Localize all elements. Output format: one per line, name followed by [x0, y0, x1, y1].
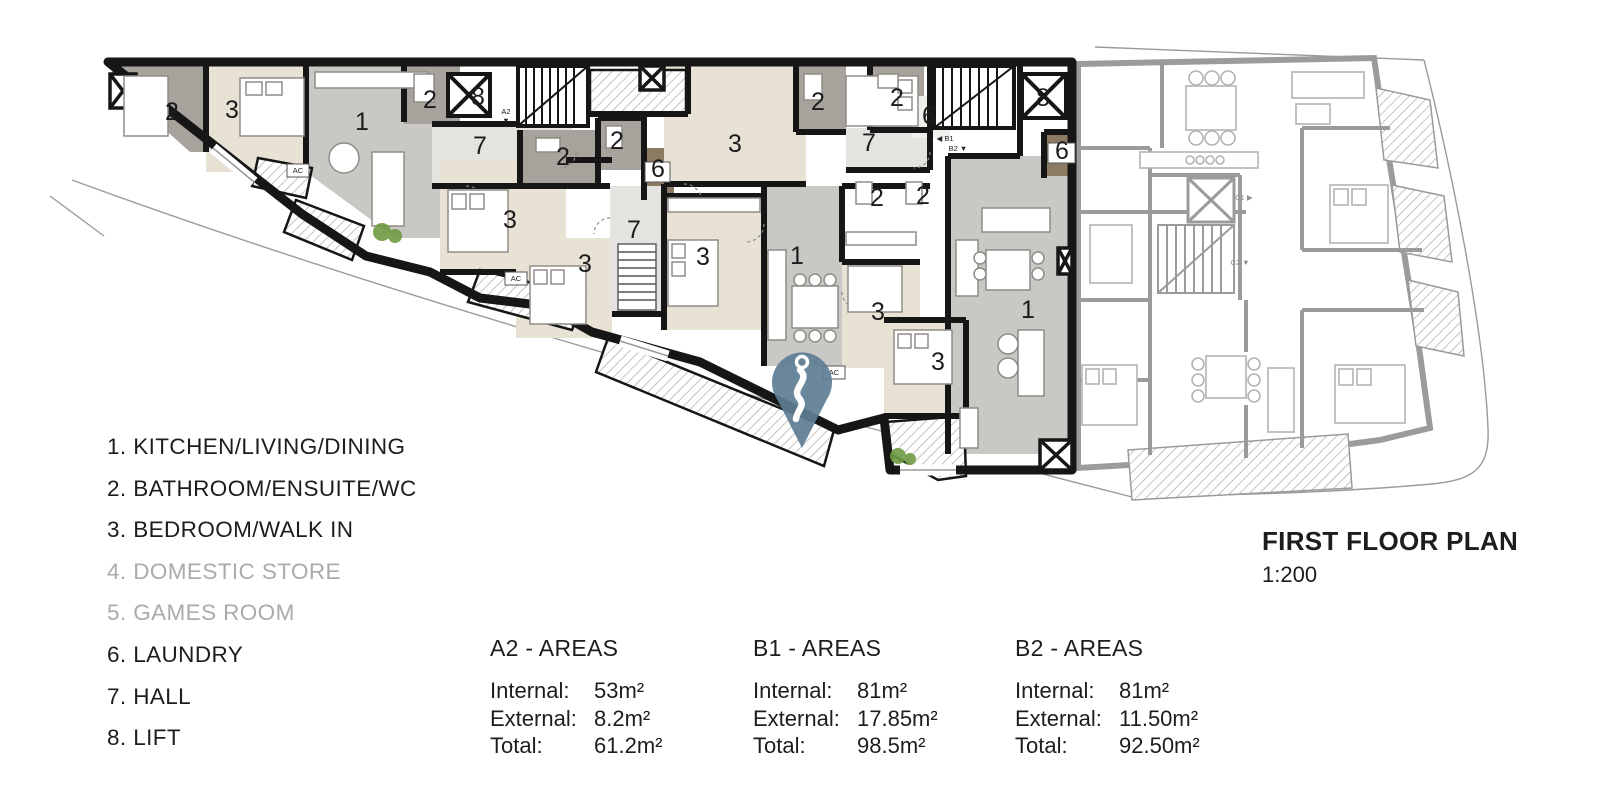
- legend-item-6: 6. LAUNDRY: [107, 642, 243, 668]
- inactive-building: [1078, 58, 1464, 500]
- stair-b-icon: [934, 66, 1014, 128]
- room-label: 2: [870, 184, 884, 212]
- room-label: 3: [503, 206, 517, 234]
- room-label: 3: [728, 130, 742, 158]
- room-label: 2: [165, 98, 179, 126]
- room-label: 1: [1021, 296, 1035, 324]
- plan-marker-label: AC: [293, 166, 304, 175]
- area-table-b2: B2 - AREAS Internal:81m² External:11.50m…: [1015, 635, 1285, 760]
- area-table-header: A2 - AREAS: [490, 635, 760, 662]
- room-label: 3: [578, 250, 592, 278]
- internal-value: 81m²: [1119, 677, 1169, 705]
- plan-marker-label: AC: [511, 274, 522, 283]
- room-label: 6: [922, 102, 936, 130]
- inactive-lift-icon: [1188, 178, 1234, 222]
- internal-value: 53m²: [594, 677, 644, 705]
- internal-stair-icon: [618, 244, 656, 310]
- room-label: 2: [890, 84, 904, 112]
- room-label: 1: [790, 242, 804, 270]
- room-label: 8: [471, 83, 485, 111]
- plan-marker-label: ◀ B1: [936, 134, 953, 143]
- room-label: 6: [1055, 137, 1069, 165]
- total-value: 98.5m²: [857, 732, 925, 760]
- room-label: 2: [556, 143, 570, 171]
- area-table-header: B1 - AREAS: [753, 635, 1023, 662]
- room-label: 3: [696, 243, 710, 271]
- room-label: 2: [610, 127, 624, 155]
- total-label: Total:: [753, 732, 857, 760]
- plan-marker-label: A2: [501, 107, 510, 116]
- room-label: 2: [811, 88, 825, 116]
- room-label: 1: [355, 108, 369, 136]
- plan-marker-label: C2 ▼: [1230, 258, 1249, 267]
- external-value: 8.2m²: [594, 705, 650, 733]
- room-label: 6: [651, 155, 665, 183]
- room-label: 7: [862, 129, 876, 157]
- room-label: 7: [627, 216, 641, 244]
- plan-scale: 1:200: [1262, 562, 1317, 588]
- room-label: 3: [225, 96, 239, 124]
- external-value: 11.50m²: [1119, 705, 1198, 733]
- legend-item-7: 7. HALL: [107, 684, 191, 710]
- legend-item-1: 1. KITCHEN/LIVING/DINING: [107, 434, 405, 460]
- plan-marker-label: C1 ▶: [1235, 193, 1254, 202]
- room-label: 8: [1036, 84, 1050, 112]
- internal-label: Internal:: [753, 677, 857, 705]
- internal-value: 81m²: [857, 677, 907, 705]
- room-label: 2: [916, 182, 930, 210]
- plan-marker-label: B2 ▼: [949, 144, 968, 153]
- room-label: 2: [423, 86, 437, 114]
- total-label: Total:: [1015, 732, 1119, 760]
- internal-label: Internal:: [490, 677, 594, 705]
- external-label: External:: [1015, 705, 1119, 733]
- legend-item-5: 5. GAMES ROOM: [107, 600, 295, 626]
- area-table-a2: A2 - AREAS Internal:53m² External:8.2m² …: [490, 635, 760, 760]
- area-table-b1: B1 - AREAS Internal:81m² External:17.85m…: [753, 635, 1023, 760]
- internal-label: Internal:: [1015, 677, 1119, 705]
- floor-plan-page: 23128722633733122768622331 A2▼◀ B1B2 ▼C1…: [0, 0, 1600, 800]
- total-value: 61.2m²: [594, 732, 662, 760]
- legend-item-2: 2. BATHROOM/ENSUITE/WC: [107, 476, 417, 502]
- legend-item-8: 8. LIFT: [107, 725, 181, 751]
- total-value: 92.50m²: [1119, 732, 1200, 760]
- room-label: 7: [473, 132, 487, 160]
- plan-marker-label: ▼: [502, 116, 509, 125]
- legend-item-4: 4. DOMESTIC STORE: [107, 559, 341, 585]
- room-label: 3: [871, 298, 885, 326]
- external-label: External:: [490, 705, 594, 733]
- stair-a-icon: [518, 66, 588, 126]
- inactive-stairs-icon: [1158, 225, 1234, 293]
- external-label: External:: [753, 705, 857, 733]
- room-label: 3: [931, 348, 945, 376]
- total-label: Total:: [490, 732, 594, 760]
- external-value: 17.85m²: [857, 705, 938, 733]
- page-title: FIRST FLOOR PLAN: [1262, 526, 1518, 557]
- area-table-header: B2 - AREAS: [1015, 635, 1285, 662]
- legend-item-3: 3. BEDROOM/WALK IN: [107, 517, 353, 543]
